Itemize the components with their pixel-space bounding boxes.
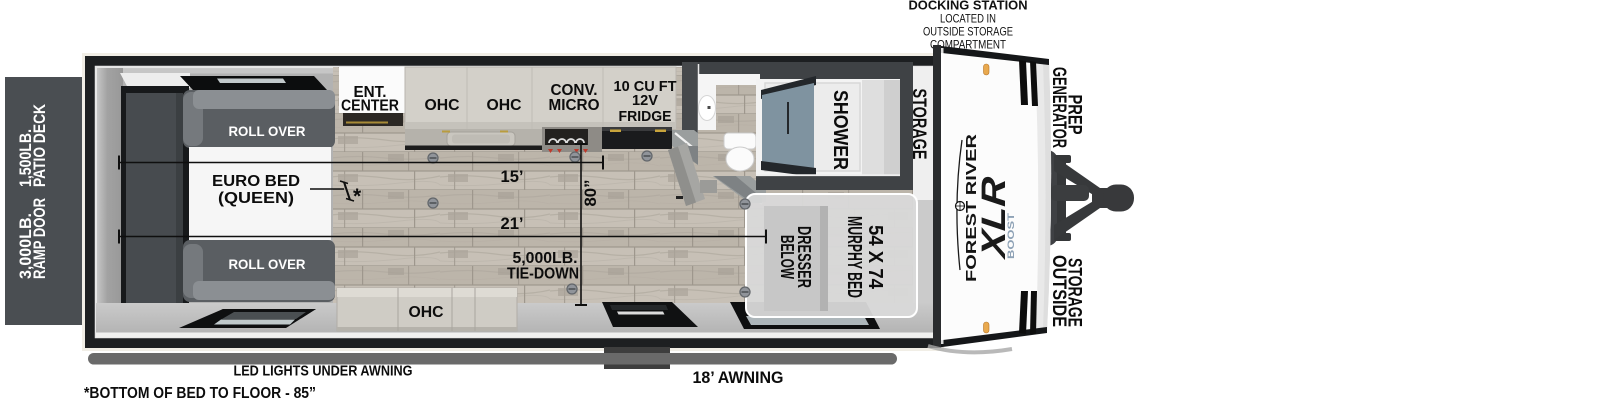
svg-text:LED LIGHTS UNDER AWNING: LED LIGHTS UNDER AWNING xyxy=(234,364,413,380)
svg-text:OHC: OHC xyxy=(487,97,522,114)
svg-text:SHOWER: SHOWER xyxy=(829,90,851,170)
svg-text:18’ AWNING: 18’ AWNING xyxy=(693,368,784,387)
svg-text:MURPHY BED: MURPHY BED xyxy=(843,216,865,298)
svg-text:54 X 74: 54 X 74 xyxy=(864,225,886,290)
svg-text:CENTER: CENTER xyxy=(341,98,399,115)
svg-text:ROLL OVER: ROLL OVER xyxy=(229,123,306,139)
svg-text:ROLL OVER: ROLL OVER xyxy=(229,256,306,272)
svg-text:*BOTTOM OF BED TO FLOOR - 85”: *BOTTOM OF BED TO FLOOR - 85” xyxy=(84,385,316,401)
svg-text:LOCATED IN: LOCATED IN xyxy=(940,12,996,26)
svg-text:*: * xyxy=(353,185,362,208)
svg-text:OHC: OHC xyxy=(409,304,444,321)
svg-text:OUTSIDE: OUTSIDE xyxy=(1048,255,1069,327)
svg-text:FRIDGE: FRIDGE xyxy=(619,108,672,125)
svg-text:TIE-DOWN: TIE-DOWN xyxy=(507,266,579,283)
svg-text:PATIO DECK: PATIO DECK xyxy=(31,104,49,187)
svg-text:(QUEEN): (QUEEN) xyxy=(218,190,294,207)
svg-text:OHC: OHC xyxy=(425,97,460,114)
svg-text:OUTSIDE STORAGE: OUTSIDE STORAGE xyxy=(923,25,1013,39)
svg-text:5,000LB.: 5,000LB. xyxy=(513,250,578,267)
svg-text:EURO BED: EURO BED xyxy=(212,173,300,190)
svg-text:STORAGE: STORAGE xyxy=(908,89,929,160)
svg-text:RAMP DOOR: RAMP DOOR xyxy=(31,198,49,279)
svg-text:BELOW: BELOW xyxy=(777,235,797,279)
svg-text:21’: 21’ xyxy=(501,215,524,233)
svg-text:12V: 12V xyxy=(632,92,658,109)
svg-text:80”: 80” xyxy=(582,180,600,207)
svg-text:15’: 15’ xyxy=(501,168,524,186)
svg-text:GENERATOR: GENERATOR xyxy=(1048,67,1069,148)
svg-text:BOOST: BOOST xyxy=(1006,212,1016,259)
svg-text:MICRO: MICRO xyxy=(549,97,600,114)
